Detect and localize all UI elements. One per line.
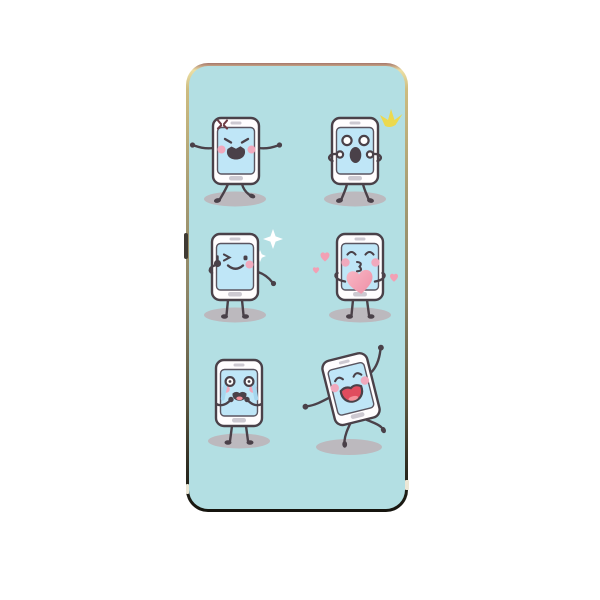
character-kissing	[305, 226, 415, 326]
ground-shadow	[329, 308, 391, 323]
speaker-slot	[355, 238, 366, 241]
antenna-notch-right	[405, 480, 409, 490]
right-arm	[259, 146, 278, 149]
antenna-notch-left	[186, 484, 190, 494]
speaker-slot	[231, 122, 242, 125]
right-leg	[242, 300, 244, 315]
right-wide-eye	[359, 136, 368, 145]
home-button	[348, 176, 362, 181]
left-arm	[306, 398, 330, 407]
left-hand	[228, 397, 233, 402]
right-hand	[271, 281, 276, 286]
tongue	[236, 397, 242, 401]
home-button	[228, 292, 242, 297]
left-wide-eye	[342, 136, 351, 145]
ground-shadow	[324, 192, 386, 207]
character-surprised	[300, 110, 410, 210]
left-foot	[221, 314, 228, 319]
tilted-phone-group	[292, 344, 405, 456]
right-foot	[247, 440, 254, 445]
left-hand	[337, 151, 343, 157]
left-pupil	[229, 380, 232, 383]
case-interior	[189, 66, 405, 509]
right-cheek	[246, 261, 254, 269]
phone-case	[186, 63, 408, 512]
right-hand	[367, 151, 373, 157]
character-angry	[181, 110, 291, 210]
heart-icon-left-top	[321, 252, 330, 261]
dot-eye	[244, 256, 248, 261]
home-button	[232, 418, 246, 423]
side-button	[184, 233, 188, 259]
ground-shadow	[204, 192, 266, 207]
right-hand	[277, 142, 282, 147]
ground-shadow	[316, 439, 382, 455]
right-foot	[368, 314, 375, 319]
left-foot	[225, 440, 232, 445]
right-pupil	[248, 380, 251, 383]
heart-icon-left-bottom	[313, 267, 319, 273]
right-foot	[242, 314, 249, 319]
left-leg	[352, 300, 354, 315]
left-arm	[194, 146, 213, 149]
ground-shadow	[204, 308, 266, 323]
left-cheek	[218, 146, 226, 154]
character-crying	[184, 352, 294, 452]
left-cheek	[341, 258, 349, 266]
gasp-mouth	[350, 147, 362, 163]
right-cheek	[371, 258, 379, 266]
right-cheek	[248, 146, 256, 154]
left-hand	[190, 142, 195, 147]
speaker-slot	[234, 364, 245, 367]
left-foot	[346, 314, 353, 319]
left-leg	[227, 300, 229, 315]
ground-shadow	[208, 434, 270, 449]
character-winking	[180, 226, 290, 326]
flash-icon	[380, 109, 403, 127]
right-hand	[244, 397, 249, 402]
left-hand	[302, 403, 309, 410]
right-hand	[377, 344, 384, 351]
right-arm	[258, 272, 273, 283]
heart-icon-right	[390, 274, 398, 282]
product-photo-canvas: { "scene": { "type": "product-photo", "d…	[0, 0, 600, 600]
character-laughing	[297, 348, 407, 458]
home-button	[229, 176, 243, 181]
speaker-slot	[350, 122, 361, 125]
sparkle-icon-large	[263, 229, 283, 249]
speaker-slot	[230, 238, 241, 241]
